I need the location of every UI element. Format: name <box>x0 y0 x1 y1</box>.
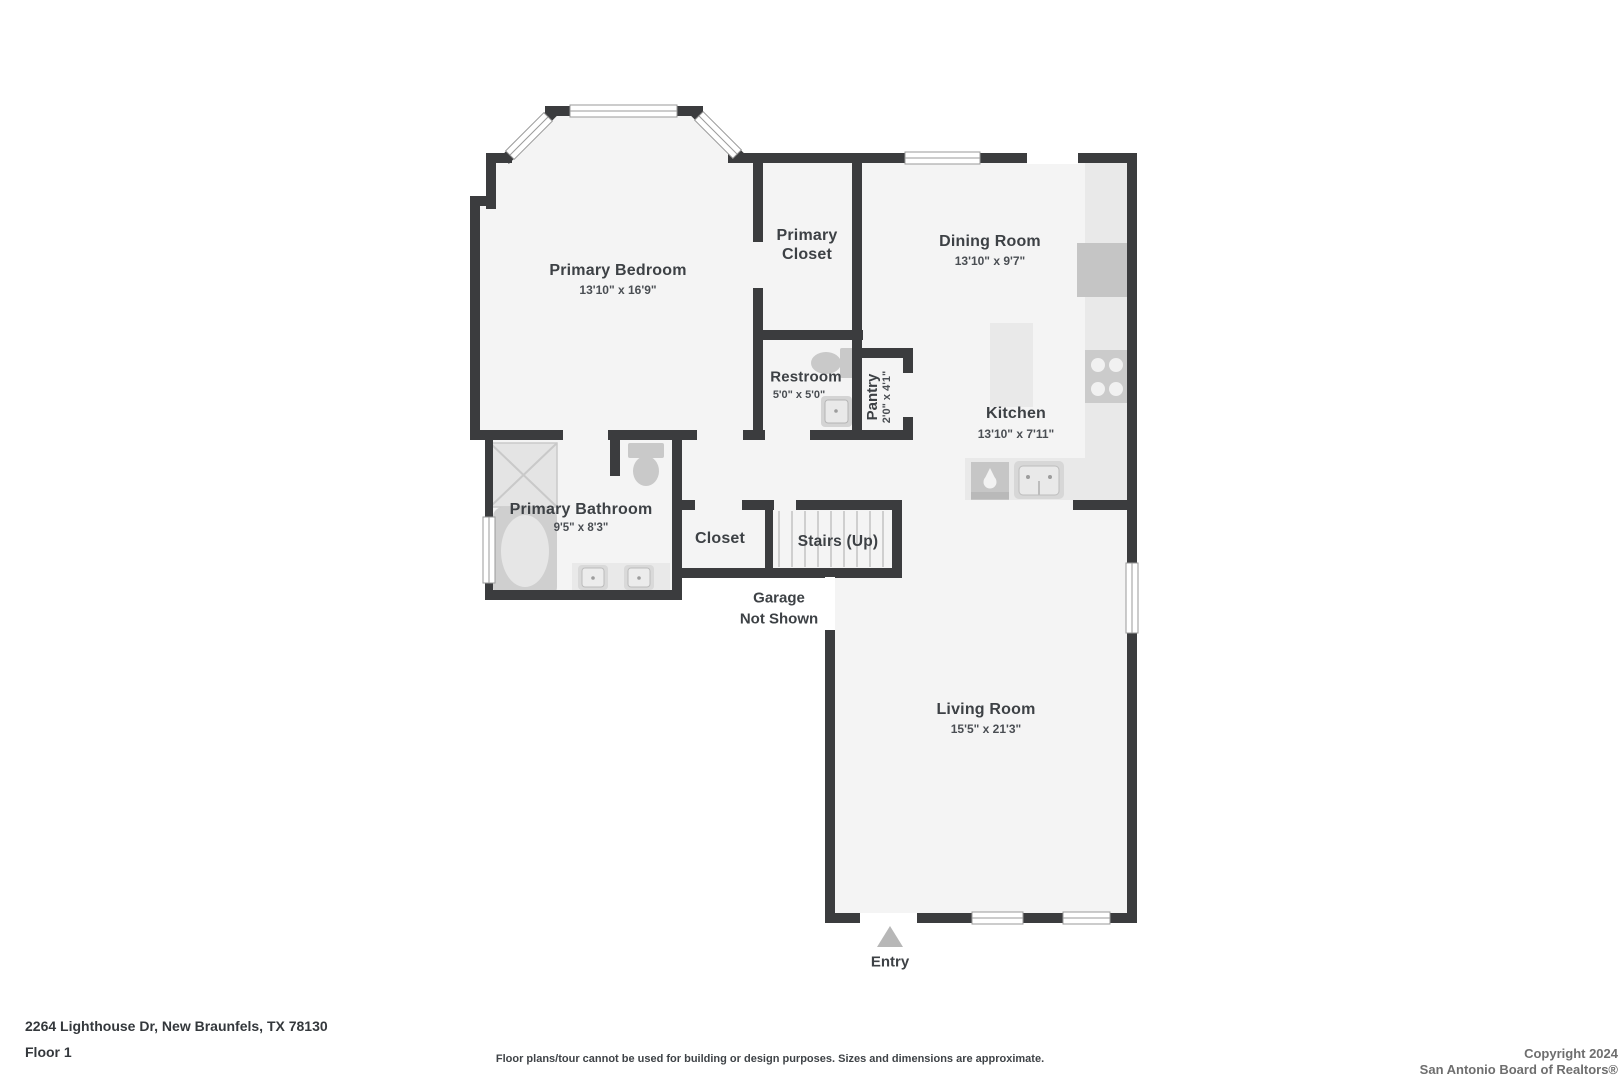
shower <box>490 443 557 507</box>
copyright-line2: San Antonio Board of Realtors® <box>1420 1062 1618 1078</box>
bathtub <box>493 507 557 597</box>
copyright-line1: Copyright 2024 <box>1420 1046 1618 1062</box>
dims-living-room: 15'5" x 21'3" <box>951 722 1021 736</box>
bathroom-vanity <box>572 563 670 590</box>
label-primary-closet: Primary Closet <box>759 226 855 264</box>
dining-window-plain <box>1027 152 1078 164</box>
dims-restroom: 5'0" x 5'0" <box>773 389 825 401</box>
dims-kitchen: 13'10" x 7'11" <box>978 427 1054 441</box>
entry-arrow-icon <box>877 926 903 947</box>
dining-window <box>905 152 980 164</box>
label-dining-room: Dining Room <box>939 233 1041 251</box>
dims-dining-room: 13'10" x 9'7" <box>955 254 1025 268</box>
garage-door-opening <box>825 577 835 630</box>
disclaimer-text: Floor plans/tour cannot be used for buil… <box>0 1053 1540 1065</box>
bathroom-window <box>483 517 495 583</box>
restroom-sink <box>821 396 852 427</box>
kitchen-sink <box>1014 461 1064 499</box>
entry-label: Entry <box>871 954 909 971</box>
living-bottom-window-2 <box>1063 912 1110 924</box>
stove <box>1085 350 1127 403</box>
label-restroom: Restroom <box>770 369 842 386</box>
entry-door-opening <box>860 913 917 923</box>
kitchen-island <box>990 323 1033 407</box>
property-address: 2264 Lighthouse Dr, New Braunfels, TX 78… <box>25 1018 328 1034</box>
garage-note-line2: Not Shown <box>740 611 818 628</box>
label-closet: Closet <box>695 530 745 548</box>
dims-primary-bedroom: 13'10" x 16'9" <box>579 283 656 297</box>
living-right-window <box>1126 563 1138 633</box>
dishwasher <box>971 462 1009 500</box>
label-primary-bathroom: Primary Bathroom <box>510 501 653 519</box>
floor-plan-page: Primary Bedroom 13'10" x 16'9" Primary C… <box>0 0 1620 1080</box>
copyright-text: Copyright 2024 San Antonio Board of Real… <box>1420 1046 1618 1078</box>
dims-primary-bathroom: 9'5" x 8'3" <box>554 522 609 534</box>
living-bottom-window-1 <box>972 912 1023 924</box>
label-stairs: Stairs (Up) <box>798 533 879 551</box>
label-kitchen: Kitchen <box>986 405 1046 423</box>
label-primary-bedroom: Primary Bedroom <box>549 262 686 280</box>
kitchen-right-counter <box>1085 163 1127 460</box>
pantry-name: Pantry <box>864 371 881 423</box>
fridge <box>1077 243 1127 297</box>
label-pantry: Pantry 2'0" x 4'1" <box>864 371 894 423</box>
bay-top-window <box>570 105 677 117</box>
pantry-dims: 2'0" x 4'1" <box>881 371 894 423</box>
hall-floor <box>672 430 913 510</box>
garage-note-line1: Garage <box>753 590 805 607</box>
label-living-room: Living Room <box>936 701 1035 719</box>
